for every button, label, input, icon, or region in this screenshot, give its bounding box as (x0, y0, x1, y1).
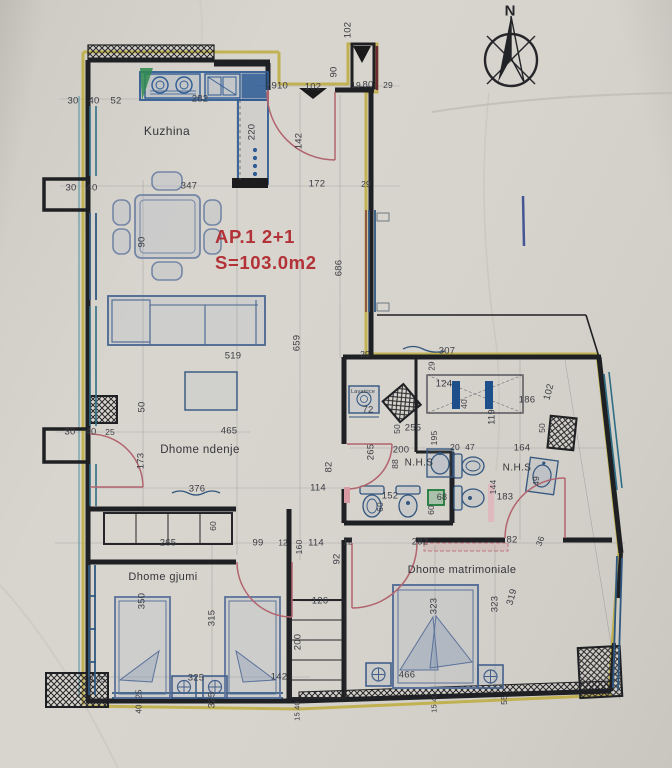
nightstand (172, 676, 227, 698)
apartment-title: AP.1 2+1 (215, 226, 295, 248)
single-bed-1 (115, 597, 170, 698)
double-bed (393, 585, 478, 688)
entrance-arrow-icon (299, 88, 327, 99)
chair (152, 172, 182, 190)
bath1-door-arc (347, 444, 392, 489)
sink (427, 449, 453, 477)
chair (152, 262, 182, 280)
bath-closet (427, 375, 523, 413)
chair (113, 200, 130, 225)
paper-creases (0, 0, 672, 768)
kitchen-sink-icon (205, 74, 240, 98)
pink-wall-mark (488, 484, 494, 522)
coffee-table (185, 372, 237, 410)
bidet (396, 486, 420, 517)
floor-plan-sheet: KuzhinaDhome ndenjeDhome gjumiDhome matr… (0, 0, 672, 768)
washing-machine (349, 386, 379, 417)
bidet (454, 486, 484, 510)
single-bed-2 (225, 597, 280, 698)
floor-plan-drawing (0, 0, 672, 768)
hatched-column (90, 396, 117, 423)
corridor-closet (291, 600, 345, 698)
pink-wall-mark (344, 487, 350, 503)
toilet (360, 486, 384, 517)
compass-icon (485, 16, 537, 86)
dining-table (113, 172, 221, 280)
hatched-column (547, 416, 576, 451)
kitchen-counter (140, 72, 268, 188)
living-cabinet (104, 513, 232, 544)
stove-icon (145, 74, 200, 98)
chair (204, 200, 221, 225)
toilet (454, 454, 484, 478)
radiator (424, 543, 508, 551)
entrance-door-arc (267, 92, 335, 160)
apartment-area: S=103.0m2 (215, 252, 317, 274)
entrance-arrow-icon (353, 46, 371, 63)
shower-drain-green (428, 490, 444, 505)
living-balcony-door-arc (90, 434, 143, 487)
sofa (108, 296, 265, 345)
chair (113, 229, 130, 254)
